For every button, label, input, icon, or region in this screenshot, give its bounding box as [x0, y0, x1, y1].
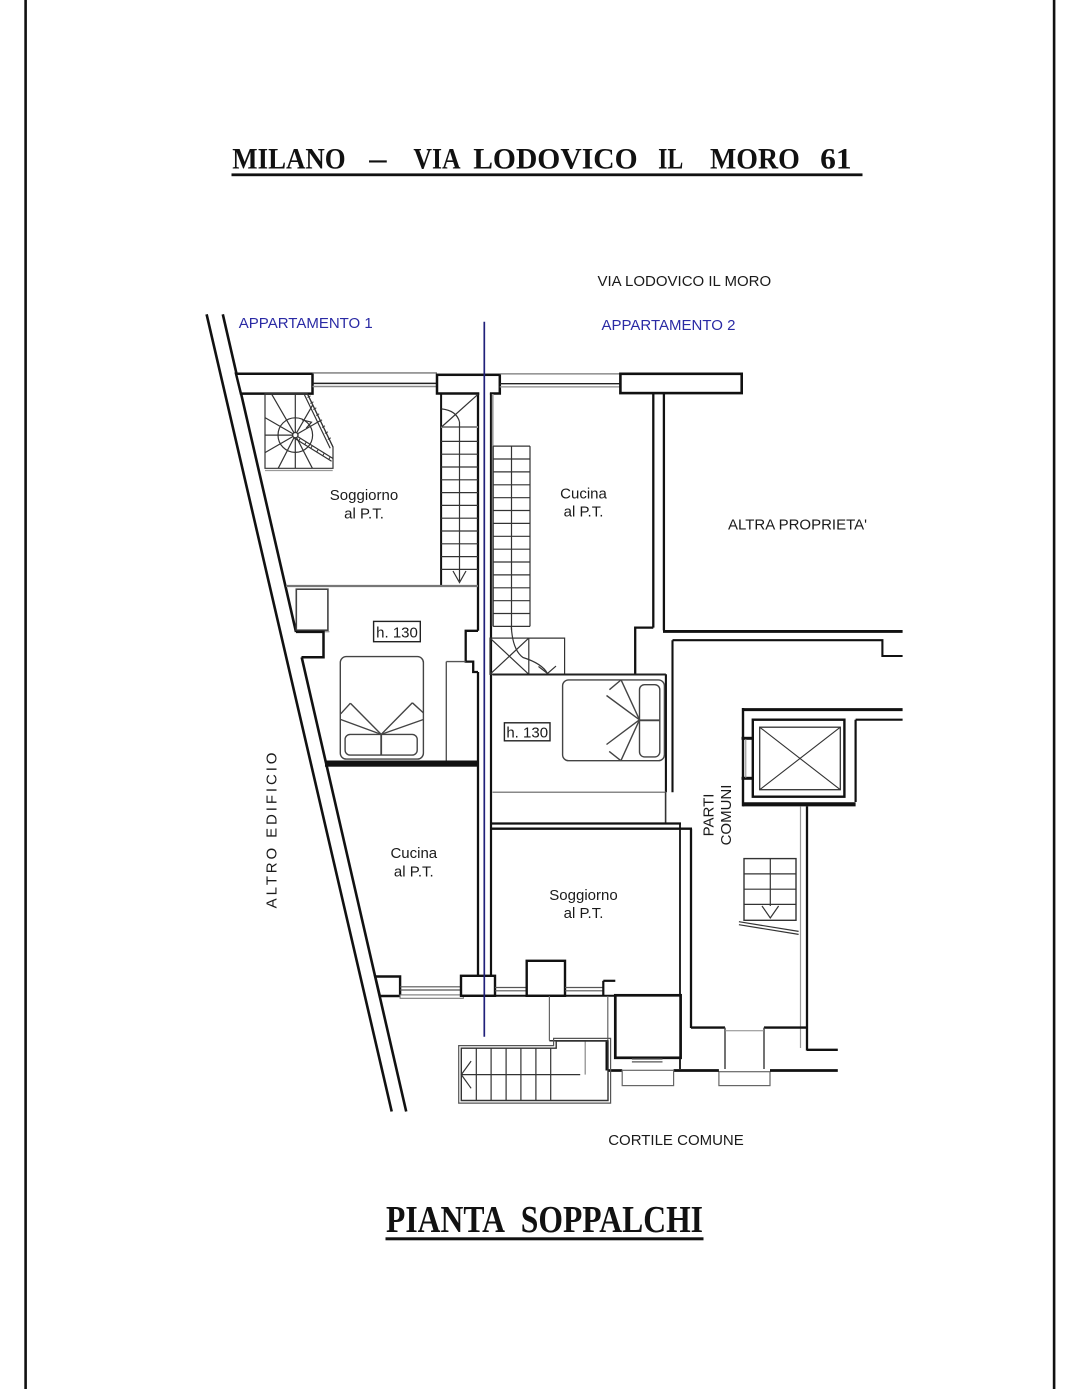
svg-text:LODOVICO: LODOVICO — [473, 143, 637, 176]
svg-text:al P.T.: al P.T. — [564, 905, 604, 922]
svg-text:Cucina: Cucina — [390, 845, 437, 862]
svg-text:ALTRO EDIFICIO: ALTRO EDIFICIO — [264, 750, 281, 909]
svg-text:h. 130: h. 130 — [376, 624, 418, 641]
svg-text:CORTILE COMUNE: CORTILE COMUNE — [608, 1132, 744, 1149]
svg-text:APPARTAMENTO 1: APPARTAMENTO 1 — [239, 315, 373, 332]
svg-text:PIANTA SOPPALCHI: PIANTA SOPPALCHI — [386, 1199, 703, 1241]
svg-text:ALTRA PROPRIETA': ALTRA PROPRIETA' — [728, 517, 867, 534]
svg-text:–: – — [368, 143, 388, 176]
svg-text:IL: IL — [658, 143, 683, 176]
svg-text:COMUNI: COMUNI — [718, 785, 735, 846]
svg-text:VIA: VIA — [413, 143, 460, 176]
svg-text:MORO: MORO — [710, 143, 800, 176]
svg-text:Cucina: Cucina — [560, 485, 607, 502]
svg-text:al P.T.: al P.T. — [344, 505, 384, 522]
svg-text:al P.T.: al P.T. — [394, 863, 434, 880]
svg-text:PARTI: PARTI — [701, 794, 718, 837]
svg-text:VIA LODOVICO IL MORO: VIA LODOVICO IL MORO — [598, 273, 772, 290]
svg-text:APPARTAMENTO 2: APPARTAMENTO 2 — [602, 317, 736, 334]
svg-text:MILANO: MILANO — [232, 143, 345, 176]
svg-text:al P.T.: al P.T. — [564, 503, 604, 520]
svg-text:Soggiorno: Soggiorno — [330, 487, 398, 504]
svg-text:h. 130: h. 130 — [506, 724, 548, 741]
svg-text:61: 61 — [820, 143, 852, 176]
svg-text:Soggiorno: Soggiorno — [549, 887, 617, 904]
